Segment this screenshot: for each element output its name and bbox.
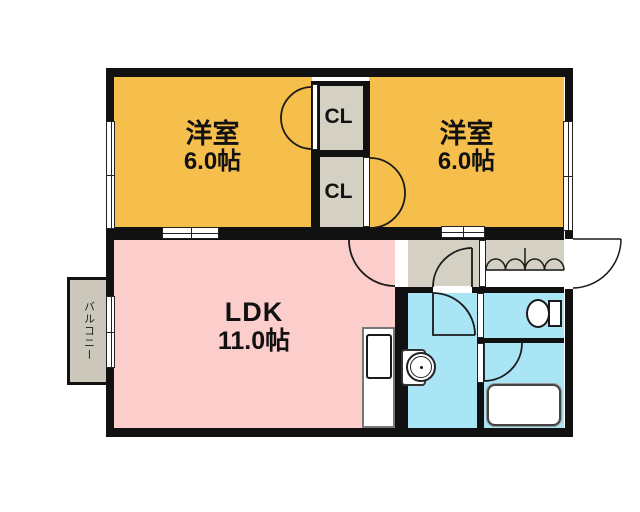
bedroom-right-size: 6.0帖: [369, 149, 564, 176]
hallway-door-arc: [433, 248, 472, 287]
ldk-name: LDK: [124, 297, 384, 327]
ldk-door-arc: [349, 240, 395, 286]
bedroom-left-size: 6.0帖: [114, 149, 311, 176]
ldk-label: LDK 11.0帖: [124, 297, 384, 355]
shoe-cabinet-door-arc-4: [545, 259, 565, 270]
washroom-door-arc: [433, 293, 475, 335]
shoe-cabinet-door-arc-1: [486, 259, 506, 270]
bedroom-right-label: 洋室 6.0帖: [369, 119, 564, 176]
shoe-cabinet-door-arc-2: [506, 259, 526, 270]
bedroom-left-name: 洋室: [114, 119, 311, 149]
bedroom-right-name: 洋室: [369, 119, 564, 149]
bedroom-left-label: 洋室 6.0帖: [114, 119, 311, 176]
closet-top-label: CL: [311, 105, 366, 129]
closet-bottom-label: CL: [311, 180, 366, 204]
bathroom-door-arc: [484, 343, 522, 381]
floor-plan: バルコニー: [0, 0, 640, 512]
door-symbols: [0, 0, 640, 512]
entrance-door-arc: [573, 239, 621, 288]
closet-top-bifold-arc-1: [281, 87, 312, 118]
shoe-cabinet-door-arc-3: [525, 259, 545, 270]
closet-bottom-bifold-arc-2: [370, 193, 405, 228]
ldk-size: 11.0帖: [124, 327, 384, 355]
